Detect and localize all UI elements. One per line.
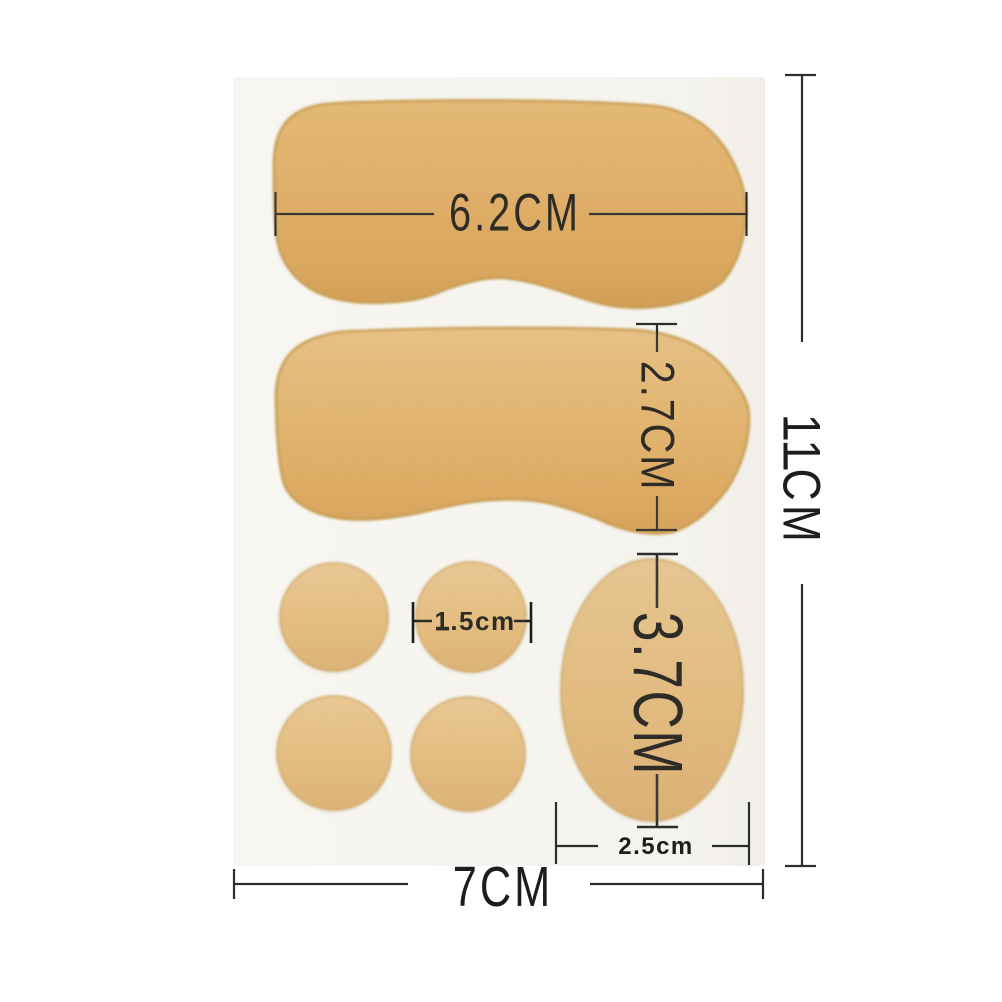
svg-text:7CM: 7CM	[453, 854, 554, 918]
svg-text:2.5cm: 2.5cm	[618, 833, 694, 860]
svg-text:11CM: 11CM	[772, 414, 830, 546]
